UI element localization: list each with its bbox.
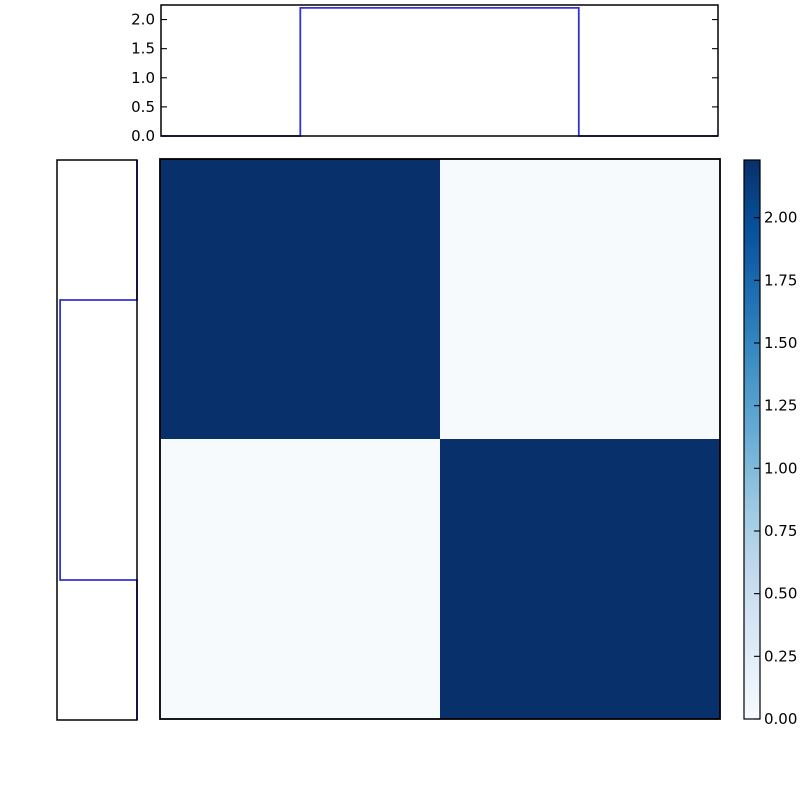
left-marginal-panel <box>57 160 137 720</box>
top-marginal-step-line <box>161 8 718 136</box>
colorbar-tick-label: 0.00 <box>764 710 797 728</box>
y-axis-tick-label: 0.5 <box>131 98 155 116</box>
cluster-heatmap-figure: 0.00.51.01.52.0 0.000.250.500.751.001.25… <box>0 0 800 800</box>
heatmap-cell-1-1 <box>440 439 720 719</box>
colorbar: 0.000.250.500.751.001.251.501.752.00 <box>744 160 797 728</box>
colorbar-tick-label: 2.00 <box>764 209 797 227</box>
colorbar-tick-label: 0.75 <box>764 522 797 540</box>
colorbar-tick-label: 1.25 <box>764 397 797 415</box>
y-axis-tick-label: 1.0 <box>131 69 155 87</box>
colorbar-tick-label: 0.25 <box>764 647 797 665</box>
heatmap-cell-0-0 <box>160 159 440 439</box>
top-marginal-panel: 0.00.51.01.52.0 <box>131 5 718 145</box>
heatmap-cell-0-1 <box>440 159 720 439</box>
heatmap-cell-1-0 <box>160 439 440 719</box>
colorbar-tick-label: 0.50 <box>764 585 797 603</box>
y-axis-tick-label: 0.0 <box>131 127 155 145</box>
y-axis-tick-label: 2.0 <box>131 11 155 29</box>
top-marginal-frame <box>161 5 718 136</box>
heatmap-panel <box>160 159 720 719</box>
colorbar-tick-label: 1.50 <box>764 334 797 352</box>
left-marginal-step-line <box>60 160 137 720</box>
colorbar-tick-label: 1.00 <box>764 459 797 477</box>
left-marginal-frame <box>57 160 137 720</box>
figure-canvas: 0.00.51.01.52.0 0.000.250.500.751.001.25… <box>0 0 800 800</box>
y-axis-tick-label: 1.5 <box>131 40 155 58</box>
colorbar-gradient <box>744 160 760 719</box>
colorbar-tick-label: 1.75 <box>764 271 797 289</box>
